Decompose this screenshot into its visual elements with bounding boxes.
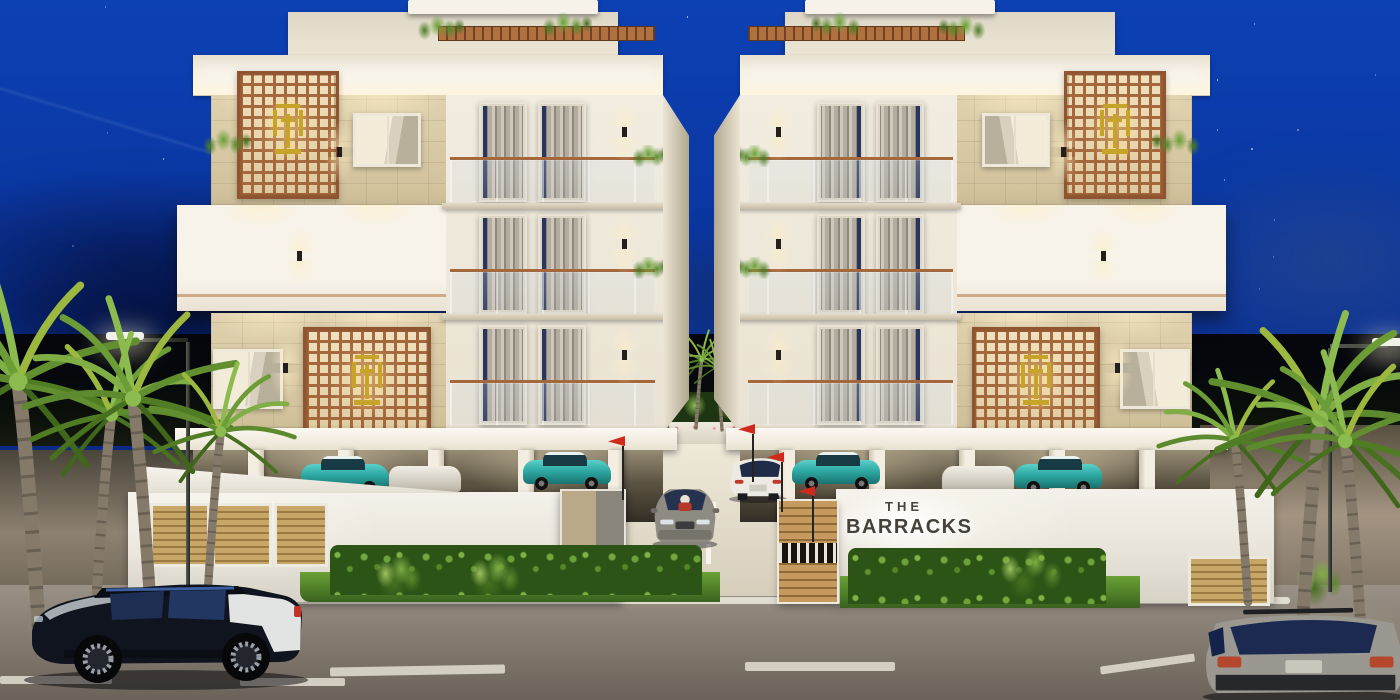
ground-slab: [175, 428, 677, 450]
street-lamp-head: [1372, 338, 1400, 346]
gold-emblem: [1097, 104, 1133, 154]
rooftop-plant: [416, 16, 464, 40]
wall-sconce: [622, 239, 627, 249]
shrub: [462, 550, 522, 602]
car-glass: [816, 452, 860, 466]
wall-sconce: [1115, 363, 1120, 373]
inner-floor: [446, 318, 663, 426]
facade-stone-low: [957, 313, 1192, 428]
gold-emblem: [1018, 355, 1054, 405]
parked-teal-car: [523, 452, 611, 490]
star: [1297, 129, 1299, 131]
star: [1251, 148, 1253, 150]
flag-pole: [752, 434, 754, 482]
gate-striped-band: [779, 543, 837, 563]
building-right: [740, 0, 1210, 530]
star: [105, 6, 106, 8]
star: [107, 132, 108, 134]
star: [1375, 74, 1376, 76]
balcony-railing: [450, 157, 655, 202]
balcony-planter: [633, 145, 667, 167]
balcony-planter: [633, 257, 667, 279]
wall-sconce: [337, 147, 342, 157]
gold-emblem: [270, 104, 306, 154]
car-glass: [1038, 456, 1082, 470]
wall-sconce: [776, 127, 781, 137]
car-glass: [543, 452, 587, 466]
project-sign: THE BARRACKS: [846, 499, 962, 539]
balcony-planter: [736, 257, 770, 279]
lane-marking: [745, 662, 895, 671]
inner-floor: [446, 207, 663, 315]
balcony-volume-mid: [177, 205, 455, 311]
rooftop-plant: [939, 16, 987, 40]
facade-inner: [446, 95, 663, 428]
inner-floor: [740, 95, 957, 203]
entrance-gate-pillar: [779, 501, 837, 602]
balcony-railing: [748, 269, 953, 314]
navy-suv-side: [14, 554, 314, 694]
gold-emblem: [349, 355, 385, 405]
scene-root: THE BARRACKS: [0, 0, 1400, 700]
star: [687, 16, 688, 18]
inner-facade-perspective: [714, 95, 740, 433]
facade-inner: [740, 95, 957, 428]
sign-line-1: THE: [846, 499, 962, 514]
balcony-railing: [748, 380, 953, 425]
wall-sconce: [1101, 251, 1106, 261]
street-lamp-head: [106, 332, 144, 340]
inner-floor: [740, 207, 957, 315]
wall-sconce: [622, 127, 627, 137]
building-left: [193, 0, 663, 530]
wall-sconce: [622, 350, 627, 360]
street-lamp-pole: [1328, 348, 1332, 592]
rooftop-plant: [540, 12, 592, 38]
star: [163, 158, 164, 160]
grey-sedan-front: [646, 474, 724, 550]
star: [1254, 23, 1255, 25]
star: [1217, 129, 1218, 131]
balcony-railing: [450, 269, 655, 314]
balcony-planter: [201, 128, 251, 158]
balcony-planter: [1152, 128, 1202, 158]
balcony-volume-mid: [948, 205, 1226, 311]
facade-stone-low: [211, 313, 446, 428]
inner-floor: [446, 95, 663, 203]
fretwork-screen: [1064, 71, 1166, 199]
wall-sconce: [776, 350, 781, 360]
flag-pole: [622, 446, 624, 500]
inner-facade-perspective: [663, 95, 689, 433]
balcony-railing: [450, 380, 655, 425]
parked-teal-car: [792, 452, 880, 490]
window: [353, 113, 421, 167]
balcony-railing: [748, 157, 953, 202]
wall-sconce: [283, 363, 288, 373]
shrub: [370, 552, 422, 600]
flag-pole: [781, 462, 783, 512]
wall-sconce: [297, 251, 302, 261]
balcony-planter: [736, 145, 770, 167]
inner-floor: [740, 318, 957, 426]
car-wheel: [535, 477, 548, 490]
sign-line-2: BARRACKS: [846, 516, 962, 539]
window: [982, 113, 1050, 167]
flag-pole: [812, 496, 814, 542]
ground-slab: [726, 428, 1228, 450]
grey-suv-rear: [1182, 596, 1400, 700]
car-glass: [321, 456, 365, 470]
wall-sconce: [1061, 147, 1066, 157]
wall-sconce: [776, 239, 781, 249]
shrub: [985, 540, 1069, 604]
rooftop-plant: [811, 12, 863, 38]
star: [1217, 79, 1218, 81]
